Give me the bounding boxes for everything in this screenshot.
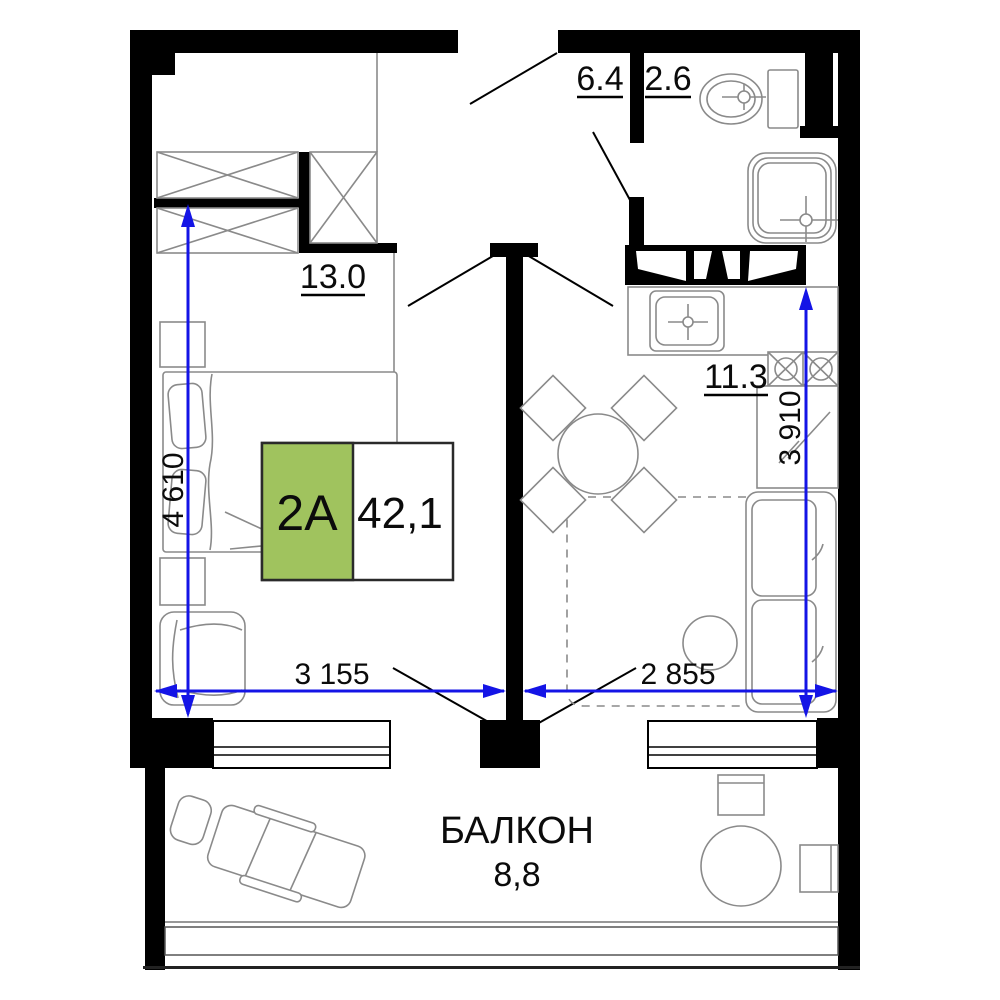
balcony-outer-edge <box>143 966 860 969</box>
balcony-glazing-band <box>165 927 838 955</box>
dim-bedroom-width: 3 155 <box>294 658 369 691</box>
floor-plan-svg: 2A 42,1 6.4 2.6 13.0 11.3 БАЛКОН 8,8 3 1… <box>0 0 1000 1000</box>
pier-top-right <box>805 53 833 135</box>
bedroom-area-label: 13.0 <box>300 258 366 296</box>
dining-table <box>558 414 638 494</box>
faucet-icon <box>683 317 693 327</box>
closet-bar <box>154 198 299 208</box>
bottom-left-corner <box>130 718 213 768</box>
bottom-right-corner <box>817 718 860 768</box>
bath-door-jamb <box>629 197 644 247</box>
unit-type-label: 2A <box>276 485 338 541</box>
balcony-table <box>701 826 781 906</box>
floor-plan: 2A 42,1 6.4 2.6 13.0 11.3 БАЛКОН 8,8 3 1… <box>0 0 1000 1000</box>
closet-bar-2 <box>299 243 397 253</box>
toilet-valve-icon <box>738 91 750 103</box>
pier-connector <box>800 126 838 138</box>
top-wall-left <box>130 30 458 53</box>
partition-header <box>490 243 538 257</box>
right-wall <box>838 30 860 970</box>
balcony-chair <box>718 775 764 815</box>
closet-wall-stub <box>299 152 310 253</box>
bathroom-area-label: 2.6 <box>644 60 691 98</box>
dim-bedroom-depth: 4 610 <box>157 452 190 527</box>
nightstand <box>160 322 205 367</box>
balcony-name-label: БАЛКОН <box>440 810 594 852</box>
dim-living-width: 2 855 <box>640 658 715 691</box>
kitchen-window <box>648 721 817 768</box>
shower-drain-icon <box>800 214 812 226</box>
unit-label-box: 2A 42,1 <box>262 443 453 580</box>
balcony-area-label: 8,8 <box>493 856 540 894</box>
partition-base-block <box>480 720 540 768</box>
top-wall-right <box>558 30 860 53</box>
nightstand <box>160 558 205 605</box>
bedroom-window <box>213 721 390 768</box>
partition-wall <box>506 255 523 722</box>
kitchen-area-label: 11.3 <box>704 358 768 396</box>
balcony-chair <box>800 845 838 892</box>
balcony-left-wall <box>145 768 165 970</box>
toilet-tank <box>768 70 798 128</box>
dim-kitchen-depth: 3 910 <box>774 390 807 465</box>
sofa <box>746 492 836 712</box>
hall-bath-divider <box>630 53 644 143</box>
unit-total-area: 42,1 <box>357 489 443 538</box>
hallway-area-label: 6.4 <box>576 60 623 98</box>
left-wall <box>130 30 152 768</box>
